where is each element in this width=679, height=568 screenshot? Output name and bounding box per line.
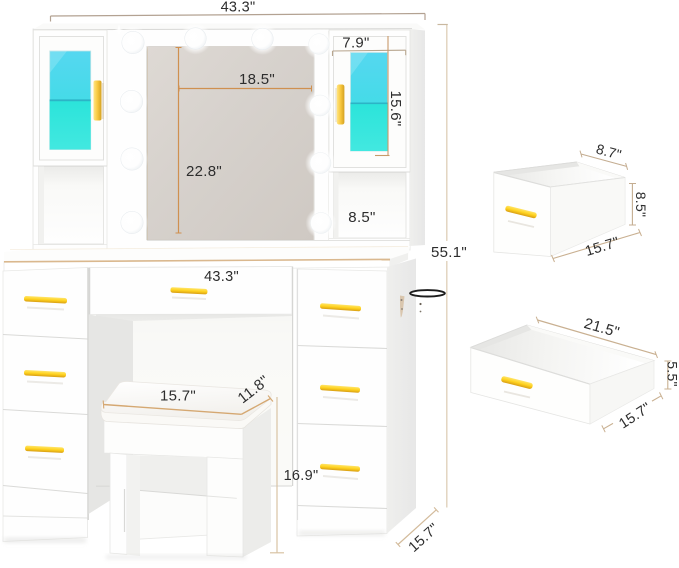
- svg-text:43.3": 43.3": [204, 269, 239, 285]
- svg-text:16.9": 16.9": [284, 468, 319, 484]
- svg-text:15.7": 15.7": [160, 388, 196, 405]
- svg-text:43.3": 43.3": [221, 0, 256, 16]
- svg-text:5.5": 5.5": [665, 361, 679, 387]
- svg-text:55.1": 55.1": [431, 244, 467, 261]
- svg-text:7.9": 7.9": [342, 35, 369, 52]
- svg-text:18.5": 18.5": [239, 71, 275, 88]
- svg-text:8.5": 8.5": [348, 209, 375, 226]
- svg-text:8.5": 8.5": [633, 192, 649, 218]
- svg-text:22.8": 22.8": [186, 163, 222, 180]
- svg-text:15.6": 15.6": [387, 90, 404, 126]
